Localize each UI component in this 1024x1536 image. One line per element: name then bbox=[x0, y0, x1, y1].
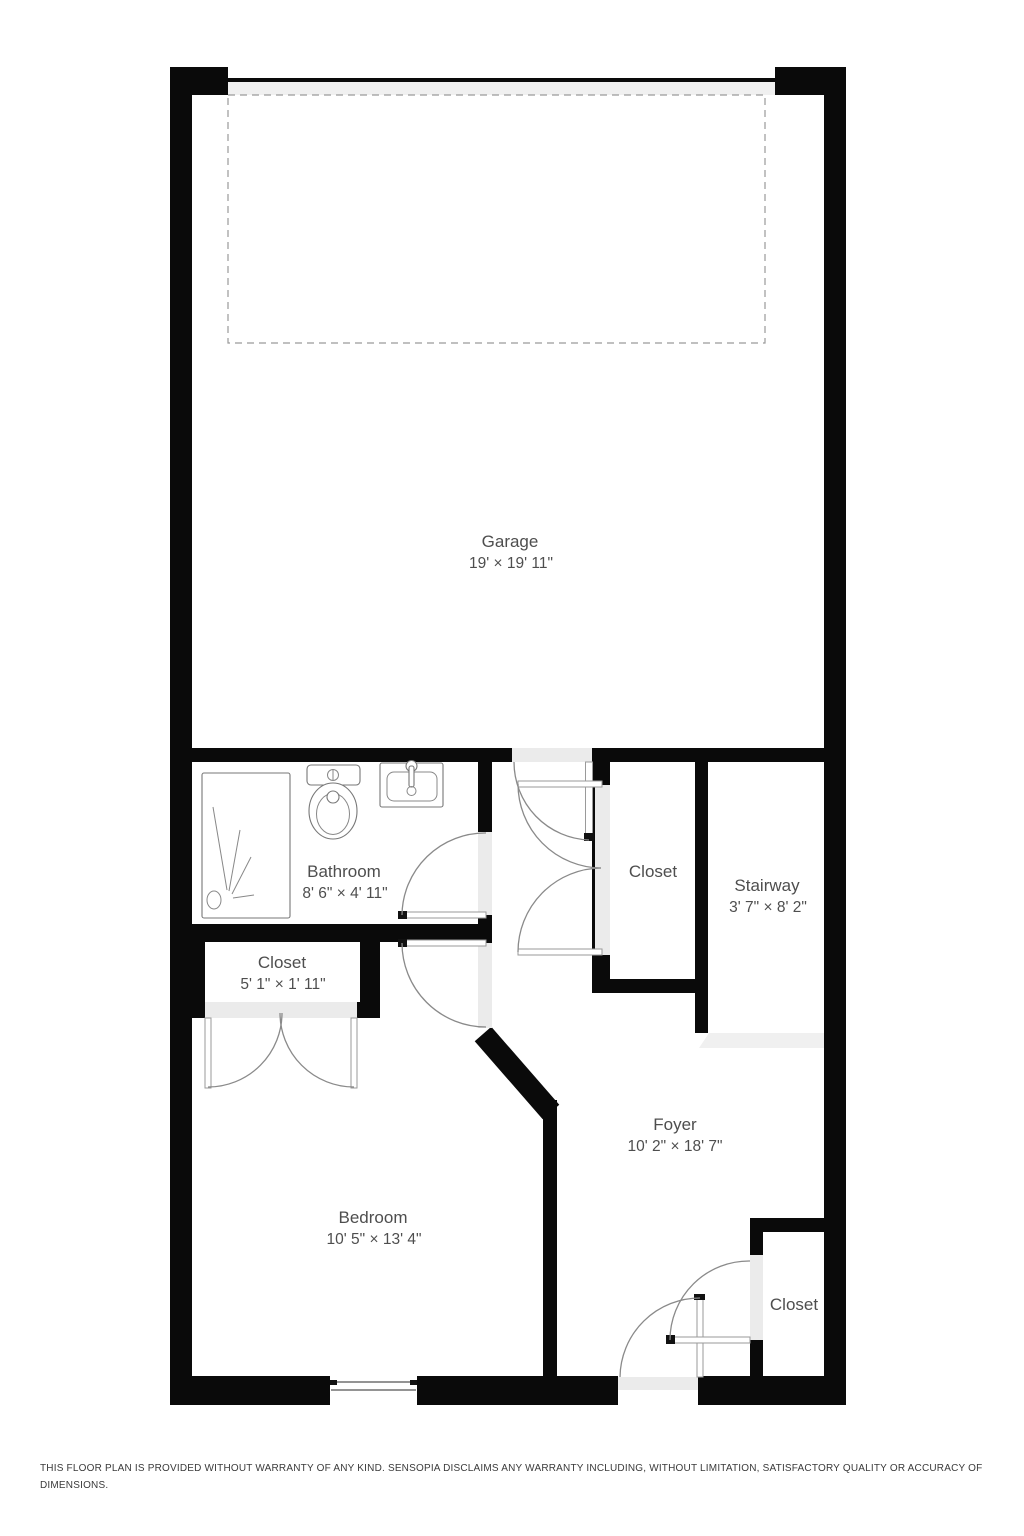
faucet-stem-icon bbox=[409, 766, 414, 787]
opening-entry-door bbox=[618, 1377, 698, 1390]
garage-door-head bbox=[228, 78, 775, 82]
room-labels: Garage 19' × 19' 11" Bathroom 8' 6" × 4'… bbox=[240, 532, 818, 1314]
room-label-stairway: Stairway bbox=[734, 876, 800, 895]
toilet-hinge-icon bbox=[327, 791, 339, 803]
bathroom-door-arc bbox=[402, 833, 486, 915]
room-dims-bedroom-closet: 5' 1" × 1' 11" bbox=[240, 976, 325, 993]
room-dims-foyer: 10' 2" × 18' 7" bbox=[628, 1138, 723, 1155]
foyer-closet-door-leaf bbox=[670, 1337, 750, 1343]
wall-top-corner-right bbox=[775, 67, 846, 95]
opening-foyer-closet bbox=[750, 1255, 763, 1340]
garage-service-door-arc bbox=[514, 762, 589, 840]
room-label-bathroom: Bathroom bbox=[307, 862, 381, 881]
wall-outer-bottom bbox=[170, 1376, 846, 1405]
wall-bedroom-foyer bbox=[543, 1100, 557, 1405]
wall-garage-south-left bbox=[170, 748, 512, 762]
wall-outer-left bbox=[170, 67, 192, 1405]
bedroom-closet-door-arc-left bbox=[208, 1013, 282, 1087]
wall-garage-south-right bbox=[592, 748, 846, 762]
garage-vehicle-door bbox=[228, 82, 775, 343]
bedroom-window bbox=[330, 1376, 417, 1405]
stairway-open-edge bbox=[699, 1033, 824, 1048]
hall-closet-door-leaf-top bbox=[518, 781, 602, 787]
bedroom-closet-door-arc-right bbox=[280, 1013, 354, 1087]
disclaimer-line-1: THIS FLOOR PLAN IS PROVIDED WITHOUT WARR… bbox=[40, 1463, 982, 1474]
wall-bathroom-south bbox=[170, 924, 492, 942]
room-dims-bedroom: 10' 5" × 13' 4" bbox=[327, 1231, 422, 1248]
room-dims-garage: 19' × 19' 11" bbox=[469, 555, 553, 572]
room-label-foyer-closet: Closet bbox=[770, 1295, 818, 1314]
wall-top-corner-left bbox=[170, 67, 228, 95]
bedroom-closet-door-leaf-right bbox=[351, 1018, 357, 1088]
entry-door-tip bbox=[694, 1294, 705, 1300]
wall-outer-right bbox=[824, 67, 846, 1405]
wall-hall-upper bbox=[478, 762, 492, 832]
garage-door-band bbox=[228, 82, 775, 95]
opening-garage-service-door bbox=[512, 748, 592, 762]
wall-diagonal bbox=[483, 1034, 551, 1112]
room-dims-stairway: 3' 7" × 8' 2" bbox=[729, 899, 807, 916]
walls bbox=[170, 67, 846, 1405]
wall-foyer-closet-top bbox=[750, 1218, 828, 1232]
jamb-bedroom-closet-right bbox=[357, 1002, 380, 1018]
room-dims-bathroom: 8' 6" × 4' 11" bbox=[302, 885, 387, 902]
window-jamb-right bbox=[410, 1380, 417, 1385]
opening-hall-closet bbox=[595, 785, 610, 955]
window-jamb-left bbox=[330, 1380, 337, 1385]
hall-closet-door-arc-bottom bbox=[518, 868, 601, 952]
wall-hall-closet-south bbox=[592, 979, 708, 993]
room-label-garage: Garage bbox=[482, 532, 539, 551]
bathroom-door-leaf bbox=[402, 912, 486, 918]
garage-door-clearance-dashed bbox=[228, 95, 765, 343]
bedroom-door-arc bbox=[402, 943, 486, 1027]
bedroom-closet-door-leaf-left bbox=[205, 1018, 211, 1088]
room-label-bedroom: Bedroom bbox=[339, 1208, 408, 1227]
jamb-bedroom-closet-left bbox=[192, 1002, 205, 1018]
hall-closet-door-leaf-bottom bbox=[518, 949, 602, 955]
room-label-foyer: Foyer bbox=[653, 1115, 697, 1134]
room-label-hall-closet: Closet bbox=[629, 862, 677, 881]
opening-bathroom-door bbox=[478, 832, 492, 915]
garage-service-door-leaf bbox=[586, 762, 593, 840]
opening-bedroom-closet bbox=[205, 1002, 357, 1018]
opening-bedroom-door bbox=[478, 943, 492, 1028]
wall-stairway-left bbox=[695, 748, 708, 1033]
floor-plan: Garage 19' × 19' 11" Bathroom 8' 6" × 4'… bbox=[0, 0, 1024, 1536]
disclaimer-line-2: DIMENSIONS. bbox=[40, 1480, 108, 1491]
disclaimer: THIS FLOOR PLAN IS PROVIDED WITHOUT WARR… bbox=[40, 1463, 982, 1491]
room-label-bedroom-closet: Closet bbox=[258, 953, 306, 972]
bedroom-door-leaf bbox=[402, 940, 486, 946]
